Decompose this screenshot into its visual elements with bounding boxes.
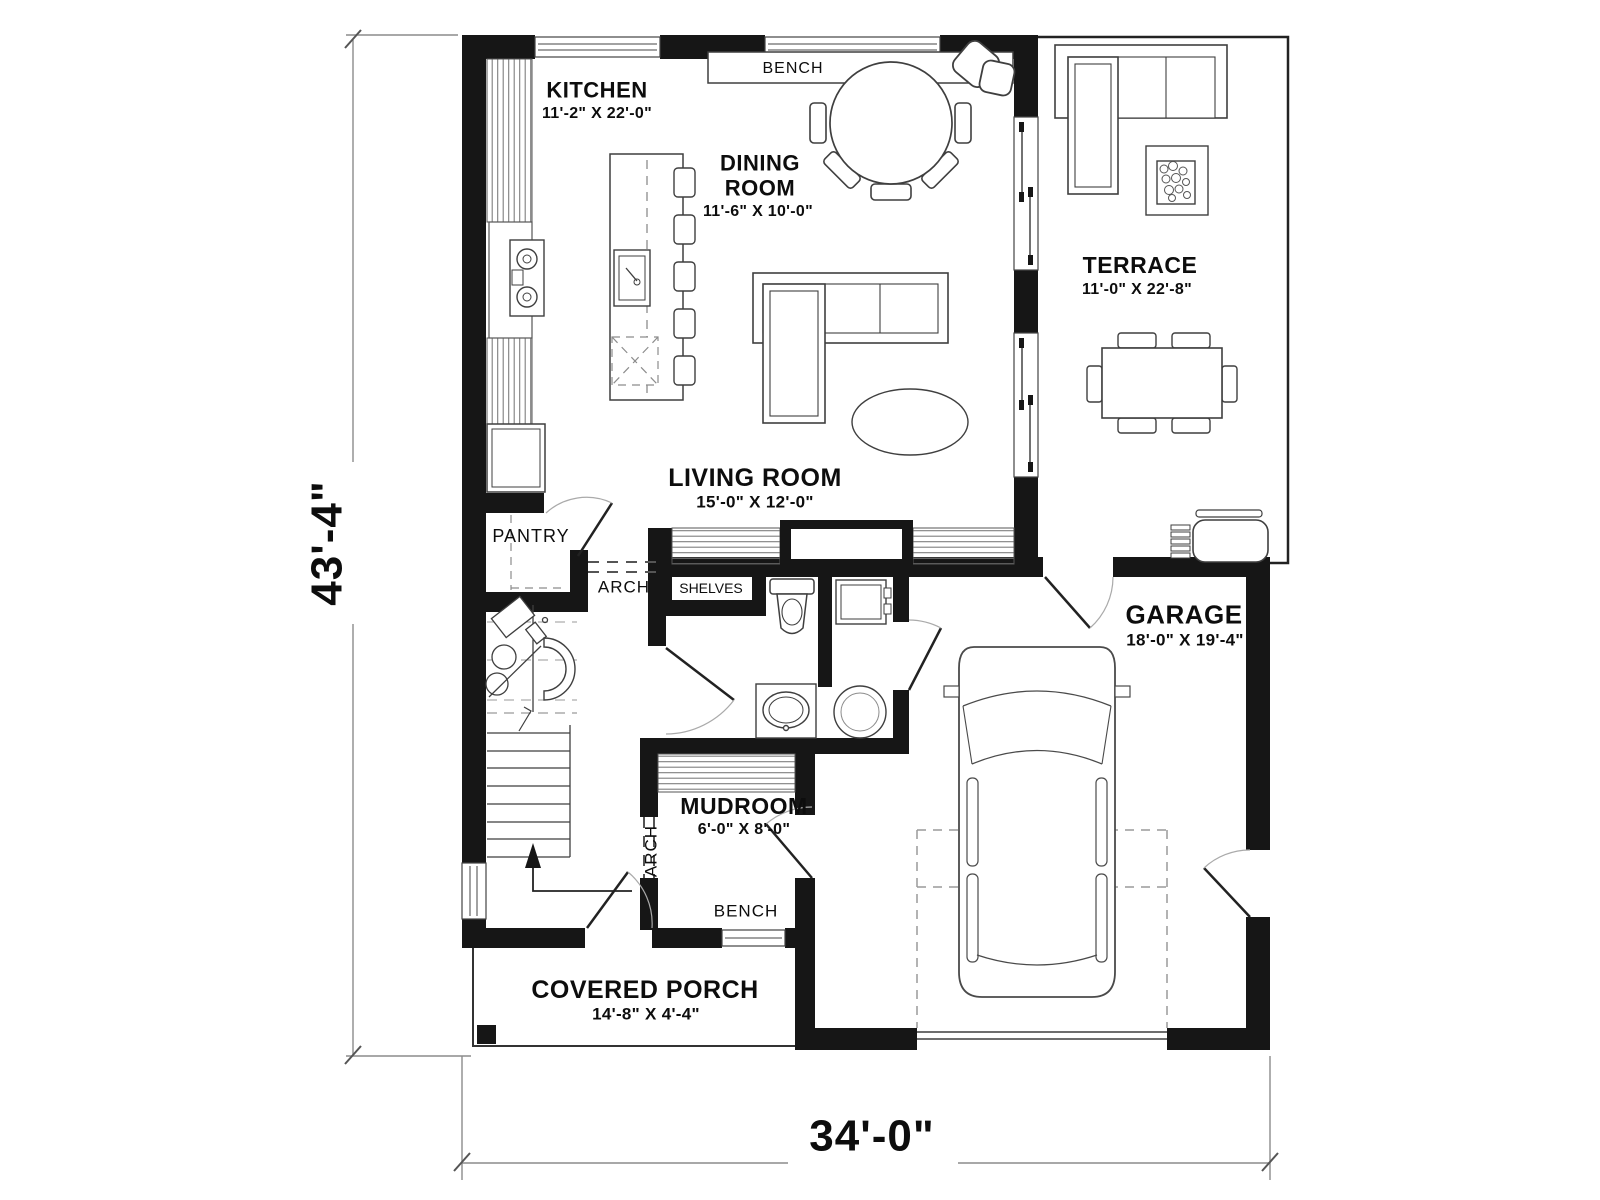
covered-porch-size: 14'-8" X 4'-4": [592, 1004, 700, 1023]
overall-depth-dimension: 43'-4": [302, 480, 351, 605]
garage-door-opening: [917, 1028, 1167, 1050]
terrace-dining-table: [1102, 348, 1222, 418]
car: [944, 647, 1130, 997]
mudroom-window: [722, 930, 785, 946]
bbq-grill: [1171, 510, 1268, 562]
pantry-label: PANTRY: [492, 526, 569, 546]
bench-mudroom-label: BENCH: [714, 901, 779, 920]
terrace-garage-door: [1045, 577, 1113, 628]
mudroom-bench-hatch: [658, 754, 795, 792]
kitchen-size: 11'-2" X 22'-0": [542, 105, 652, 123]
stairs-up-arrow: [525, 843, 632, 891]
arch-hall-label: ARCH: [598, 577, 650, 596]
utility-garage-door: [909, 620, 941, 690]
dining-table: [830, 62, 952, 184]
window-seat-hatch-left: [672, 528, 780, 564]
area-rug: [852, 389, 968, 455]
dimension-left: [345, 30, 471, 1064]
arch-mudroom-label: ARCH: [641, 825, 660, 877]
fire-table: [1146, 146, 1208, 215]
toilet: [770, 579, 814, 634]
mudroom-size: 6'-0" X 8'-0": [698, 821, 791, 839]
overall-width-dimension: 34'-0": [809, 1111, 934, 1160]
powder-door: [666, 648, 734, 734]
living-label: LIVING ROOM: [668, 464, 842, 492]
dining-size: 11'-6" X 10'-0": [703, 203, 813, 221]
kitchen-island: [610, 154, 683, 400]
garage-side-door: [1204, 850, 1250, 917]
refrigerator: [487, 424, 545, 492]
fireplace: [780, 520, 913, 567]
garage-size: 18'-0" X 19'-4": [1126, 630, 1244, 649]
living-size: 15'-0" X 12'-0": [696, 492, 814, 511]
shelves-label: SHELVES: [679, 581, 743, 597]
window-seat-hatch-right: [913, 528, 1014, 564]
stairs: [487, 707, 577, 857]
garage-label: GARAGE: [1125, 600, 1242, 629]
powder-sink: [756, 684, 816, 738]
furnace: [836, 580, 891, 624]
kitchen-range: [510, 240, 544, 316]
office-chair: [544, 638, 575, 700]
bench-dining-label: BENCH: [762, 60, 823, 78]
west-window: [462, 863, 486, 919]
porch-post: [477, 1025, 496, 1044]
floor-plan-page: KITCHEN 11'-2" X 22'-0" DINING ROOM 11'-…: [0, 0, 1600, 1200]
kitchen-label: KITCHEN: [546, 79, 647, 104]
mudroom-label: MUDROOM: [680, 794, 807, 820]
terrace-size: 11'-0" X 22'-8": [1082, 281, 1192, 299]
water-heater: [834, 686, 886, 738]
terrace-label: TERRACE: [1083, 253, 1198, 279]
dining-label: DINING ROOM: [701, 151, 819, 200]
covered-porch-label: COVERED PORCH: [531, 976, 758, 1004]
